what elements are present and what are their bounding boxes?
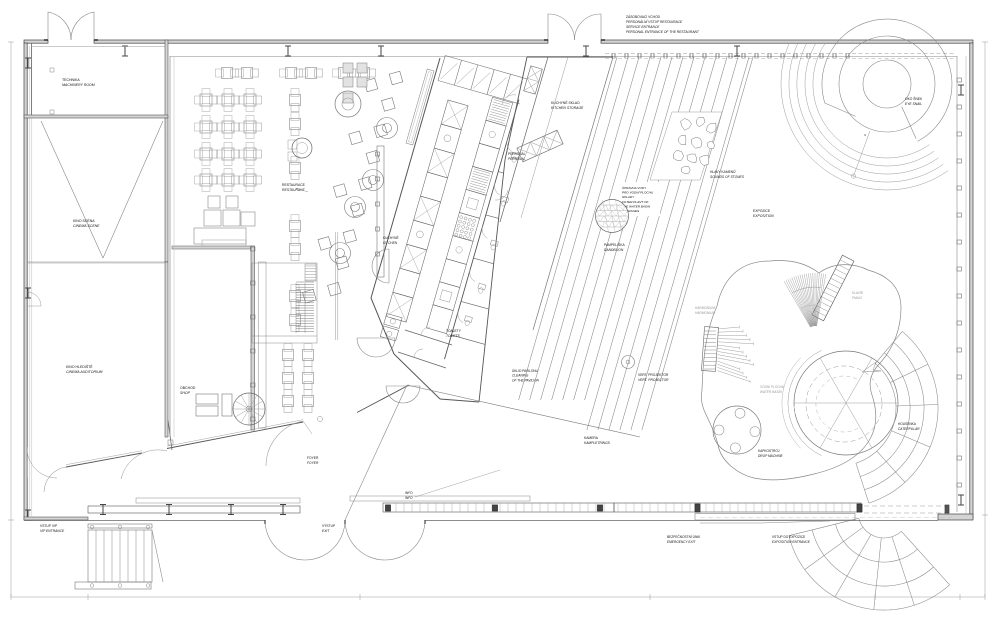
svg-text:CATERPILLAR: CATERPILLAR (898, 427, 920, 431)
svg-text:CINEMA AUDITORIUM: CINEMA AUDITORIUM (66, 370, 103, 374)
svg-text:EYE SNAIL: EYE SNAIL (905, 102, 922, 106)
svg-text:PERSONÁL: PERSONÁL (508, 152, 526, 156)
svg-text:TECHNIKA: TECHNIKA (62, 78, 80, 82)
svg-text:SOUNDS OF STONES: SOUNDS OF STONES (710, 175, 745, 179)
svg-text:KAMERA: KAMERA (584, 436, 599, 440)
svg-text:DROP MACHINE: DROP MACHINE (758, 454, 784, 458)
svg-text:FILTER PLANT OF: FILTER PLANT OF (622, 200, 650, 204)
svg-text:OKO ŠNEK: OKO ŠNEK (905, 96, 923, 101)
svg-text:VSTUP VIP: VSTUP VIP (40, 524, 58, 528)
svg-text:SHOP: SHOP (180, 391, 191, 395)
svg-text:MACHINERY ROOM: MACHINERY ROOM (62, 83, 95, 87)
svg-text:PIANO: PIANO (852, 296, 862, 300)
svg-text:KAMPLETRINGS: KAMPLETRINGS (584, 441, 611, 445)
svg-text:VSTUP DO EXPOZICE: VSTUP DO EXPOZICE (772, 535, 805, 539)
svg-text:PAMPELIŠKA: PAMPELIŠKA (604, 242, 625, 247)
svg-text:SKLADY: SKLADY (622, 195, 635, 199)
svg-text:VERT. PROJECTOR: VERT. PROJECTOR (638, 378, 669, 382)
svg-text:FOYER: FOYER (785, 406, 797, 410)
svg-text:ÚKLID PAVILONU: ÚKLID PAVILONU (512, 368, 539, 373)
svg-text:PERSONÁLNÍ VSTUP RESTAURACE: PERSONÁLNÍ VSTUP RESTAURACE (626, 20, 683, 24)
svg-text:KLAVÍR: KLAVÍR (852, 291, 864, 295)
svg-text:PERSONAL: PERSONAL (508, 157, 526, 161)
svg-text:RESTAURACE: RESTAURACE (282, 183, 306, 187)
svg-text:VÝSTUP: VÝSTUP (322, 524, 336, 528)
svg-text:FOYER: FOYER (785, 411, 797, 415)
svg-text:HARMONIUM: HARMONIUM (695, 306, 715, 310)
svg-text:SERVICE ENTRANCE: SERVICE ENTRANCE (626, 25, 660, 29)
svg-text:BEZPEČNOSTNÍ ÚNIK: BEZPEČNOSTNÍ ÚNIK (667, 534, 701, 539)
svg-text:EXPOSITION ENTRANCE: EXPOSITION ENTRANCE (772, 540, 811, 544)
svg-text:PERSONAL ENTRANCE OF THE RESTA: PERSONAL ENTRANCE OF THE RESTAURANT (626, 30, 700, 34)
svg-text:VODNÍ PLOCHA: VODNÍ PLOCHA (760, 385, 785, 389)
svg-text:VERT. PROJEKTOR: VERT. PROJEKTOR (638, 373, 669, 377)
svg-text:KINO SCÉNA: KINO SCÉNA (73, 218, 95, 223)
svg-text:INFO: INFO (405, 491, 413, 495)
svg-text:OBCHOD: OBCHOD (180, 386, 196, 390)
svg-text:EXIT: EXIT (322, 529, 330, 533)
svg-text:CINEMA SCENE: CINEMA SCENE (73, 224, 100, 228)
svg-text:KUCHYNĚ: KUCHYNĚ (383, 235, 399, 240)
svg-text:KINO HLEDIŠTĚ: KINO HLEDIŠTĚ (66, 364, 93, 369)
svg-text:KITCHEN: KITCHEN (383, 241, 398, 245)
svg-text:FOYER: FOYER (307, 456, 319, 460)
svg-text:PRO VODNÍ PLOCHU: PRO VODNÍ PLOCHU (622, 191, 654, 195)
svg-text:EMERGENCY EXIT: EMERGENCY EXIT (667, 540, 697, 544)
svg-text:TOALETY: TOALETY (446, 329, 462, 333)
svg-text:KAPKOSTROJ: KAPKOSTROJ (758, 449, 780, 453)
svg-text:KITCHEN STORAGE: KITCHEN STORAGE (551, 106, 584, 110)
svg-text:EXPOZICE: EXPOZICE (753, 209, 771, 213)
svg-text:DANDELION: DANDELION (604, 248, 624, 252)
svg-text:ÚPRAVNA VODY: ÚPRAVNA VODY (622, 186, 646, 190)
svg-text:HOUSENKA: HOUSENKA (898, 422, 917, 426)
svg-text:CLEANING: CLEANING (512, 374, 529, 378)
svg-text:TOILETS: TOILETS (446, 334, 460, 338)
svg-text:WATER BASIN: WATER BASIN (760, 390, 782, 394)
svg-text:HARMONIUM: HARMONIUM (695, 311, 715, 315)
svg-text:FOYER: FOYER (307, 461, 319, 465)
svg-text:INFO: INFO (405, 496, 413, 500)
svg-text:VIP ENTRANCE: VIP ENTRANCE (40, 529, 65, 533)
svg-text:HLAVY KAMENŮ: HLAVY KAMENŮ (710, 169, 736, 174)
svg-text:EXPOSITION: EXPOSITION (753, 214, 774, 218)
svg-text:ZÁSOBOVACÍ VCHOD: ZÁSOBOVACÍ VCHOD (626, 15, 661, 19)
